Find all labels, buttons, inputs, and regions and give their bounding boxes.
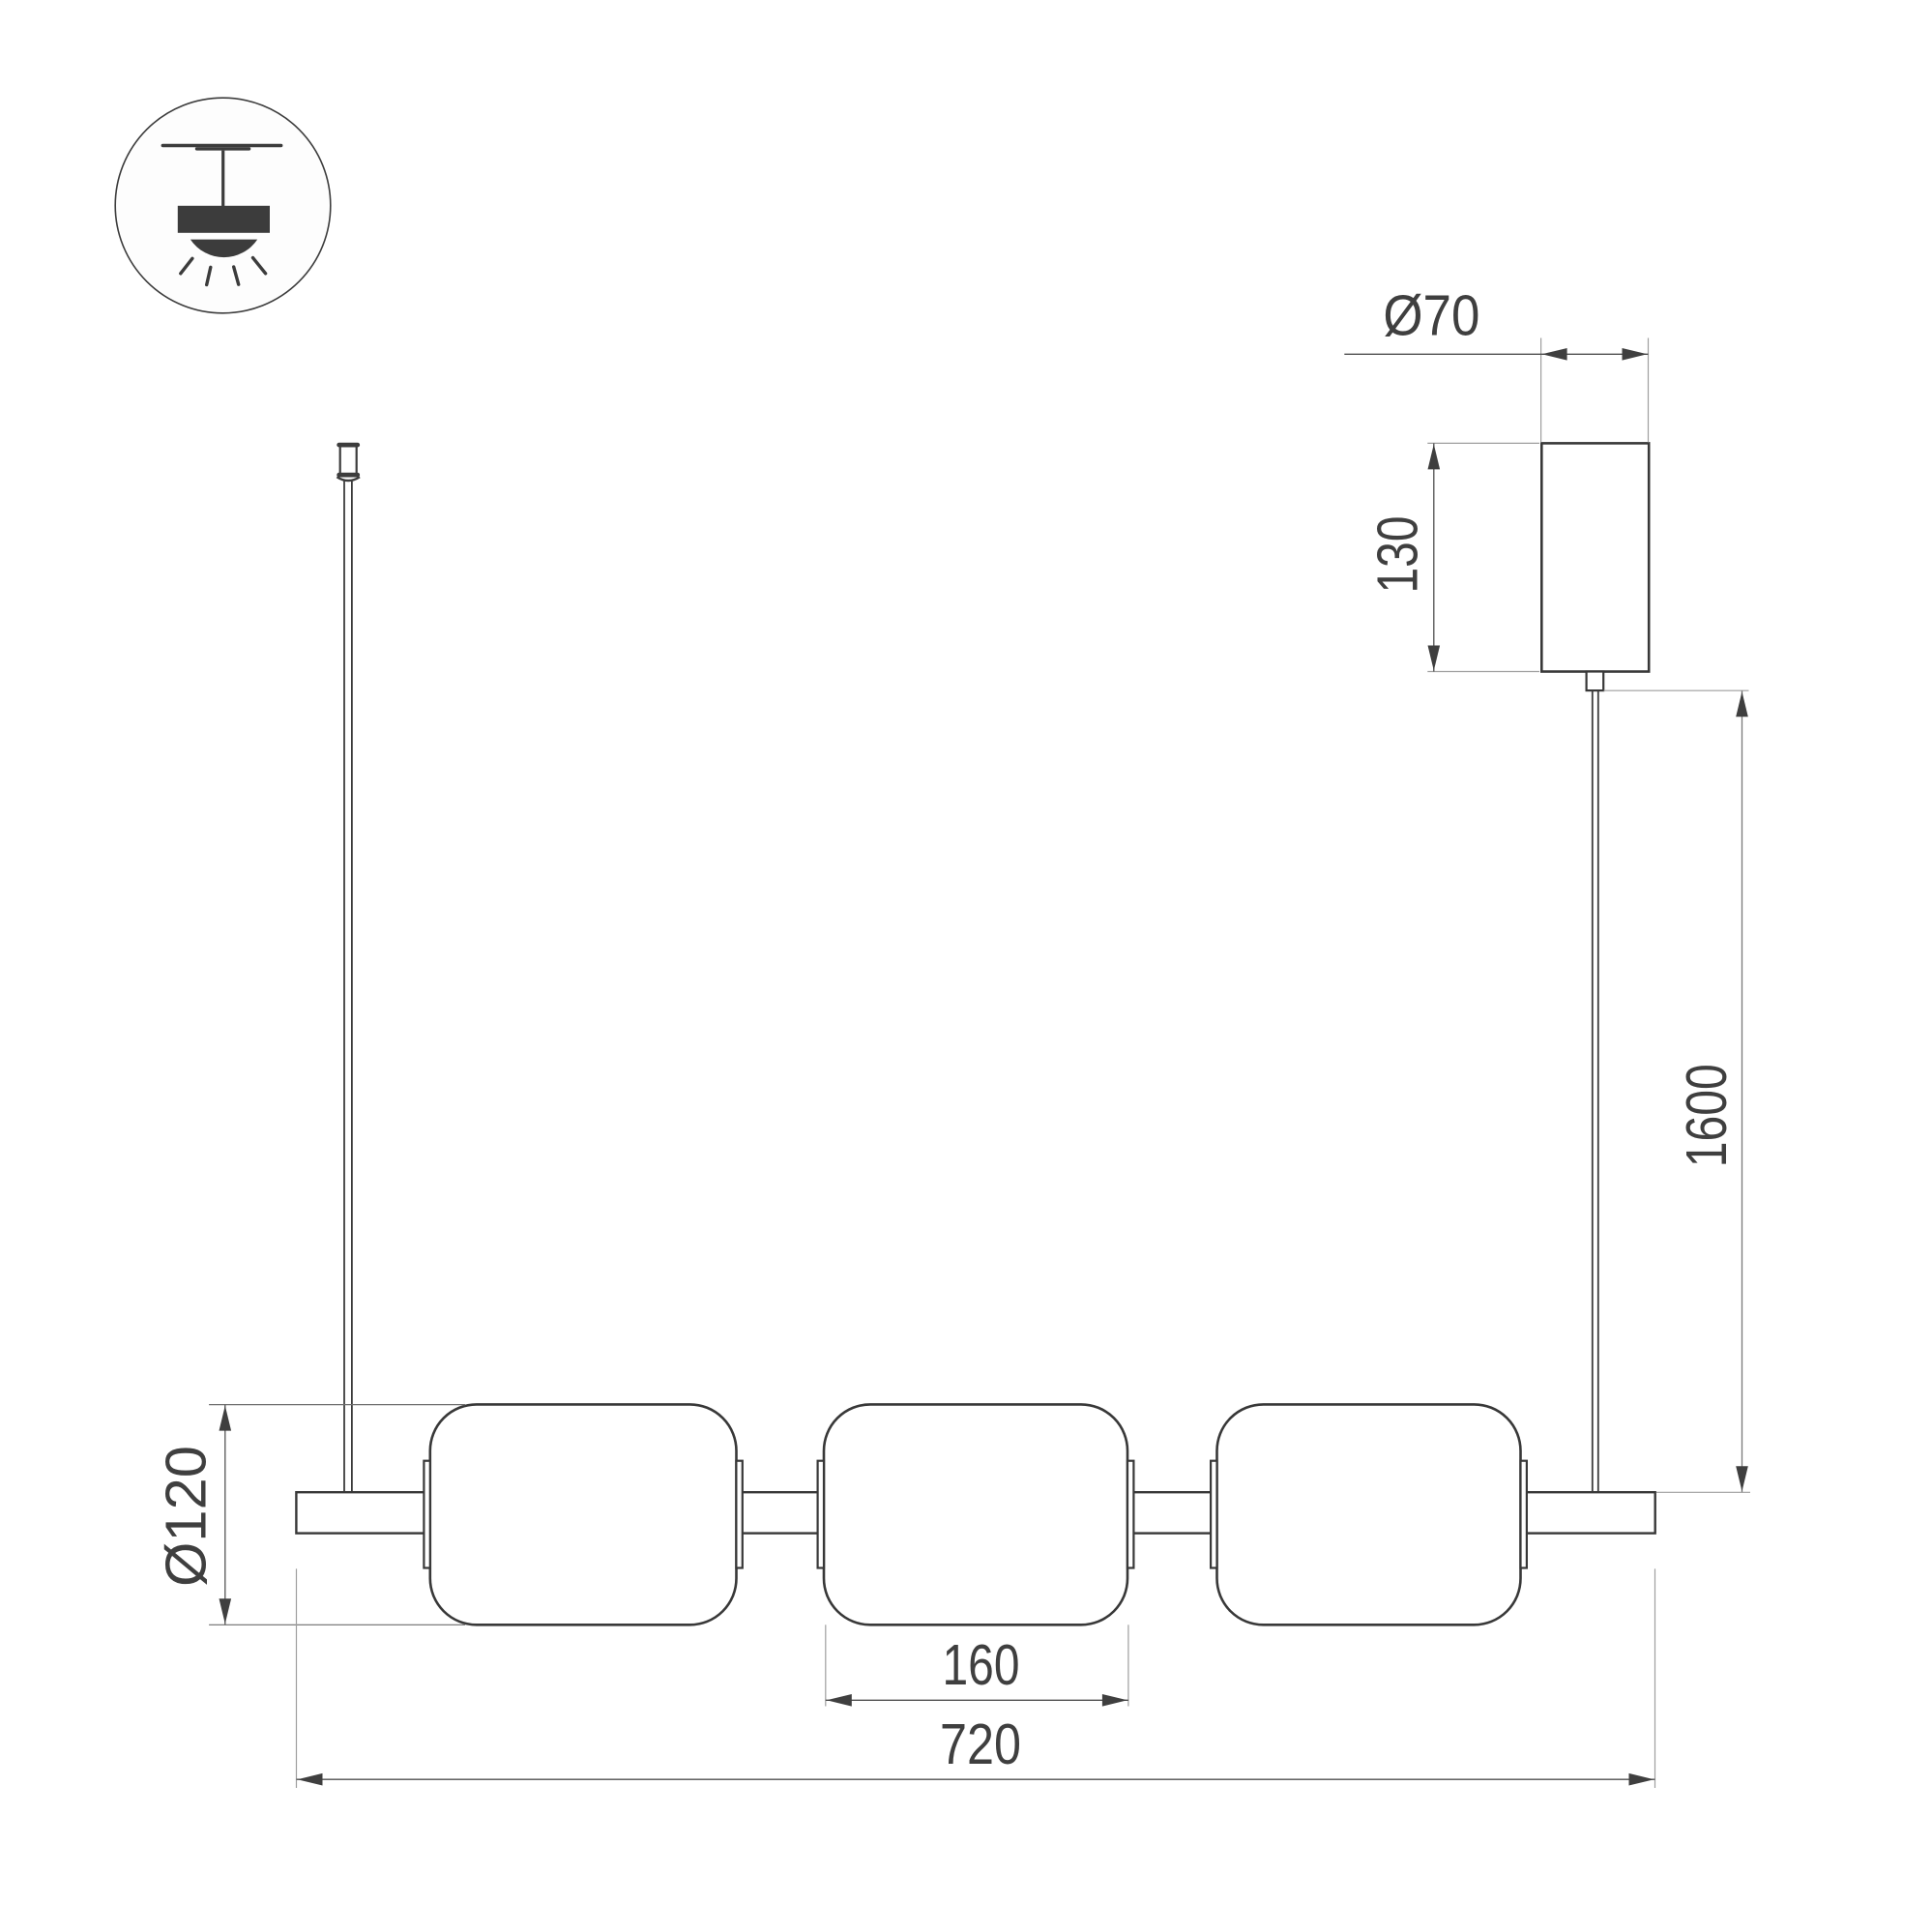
svg-text:1600: 1600 <box>1675 1064 1739 1167</box>
svg-text:130: 130 <box>1365 516 1429 594</box>
svg-text:Ø70: Ø70 <box>1383 284 1479 348</box>
svg-text:720: 720 <box>940 1712 1021 1776</box>
svg-text:160: 160 <box>943 1633 1020 1697</box>
svg-text:Ø120: Ø120 <box>155 1446 219 1587</box>
